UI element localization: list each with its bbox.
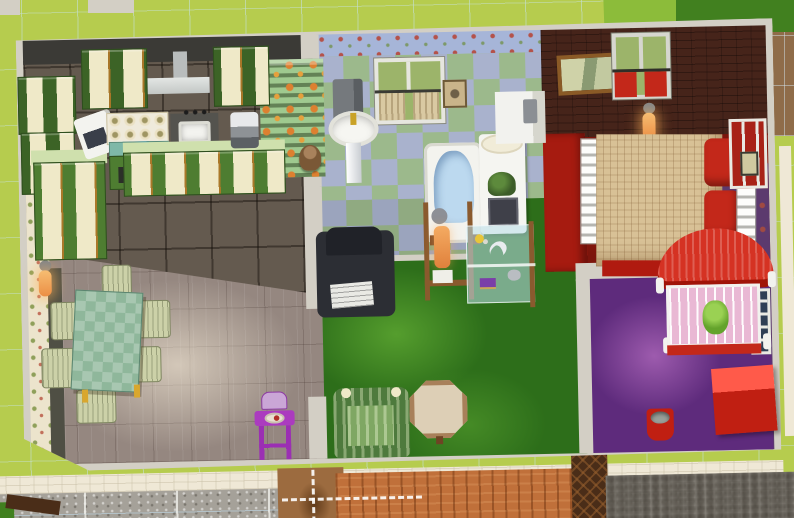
side-window-art	[740, 151, 758, 175]
green-striped-armchair[interactable]	[333, 387, 410, 459]
game-viewport	[0, 0, 794, 518]
recliner-papers	[330, 281, 374, 309]
armchair-knob-right	[391, 387, 401, 397]
red-toy-box[interactable]	[711, 365, 778, 435]
octagonal-table-top	[409, 380, 468, 439]
bedroom-curtain-left	[614, 72, 637, 97]
counter-appliance	[523, 99, 537, 123]
high-chair[interactable]	[252, 391, 297, 460]
sink-faucet-gold	[350, 113, 356, 125]
house-interior	[23, 25, 775, 464]
armchair-knob-left	[341, 388, 351, 398]
dark-recliner[interactable]	[316, 230, 396, 318]
curtain-left	[379, 93, 406, 121]
high-chair-legs	[259, 425, 292, 460]
curtain-right	[413, 92, 440, 120]
table-leg-left	[82, 390, 88, 403]
bucket-interior	[651, 411, 670, 423]
crib-post-se	[763, 333, 771, 349]
crib-base	[667, 343, 761, 355]
crib-post-nw	[656, 277, 664, 293]
range-hood-pipe	[173, 51, 188, 79]
canopy-crib[interactable]	[655, 223, 780, 358]
teddy-bear[interactable]	[299, 145, 322, 171]
candle[interactable]	[434, 226, 451, 268]
sconce-light	[38, 270, 52, 296]
coffee-maker[interactable]	[230, 112, 259, 149]
base-cabinet-west[interactable]	[33, 161, 107, 260]
dining-table[interactable]	[71, 290, 144, 393]
octagonal-table[interactable]	[409, 380, 468, 445]
upper-cabinets-left[interactable]	[81, 48, 148, 109]
red-bucket[interactable]	[646, 408, 674, 441]
paper-holder[interactable]	[443, 80, 468, 108]
teapot	[508, 269, 521, 280]
bathroom-counter[interactable]	[495, 91, 546, 144]
recliner-backrest	[326, 226, 383, 255]
high-chair-back	[261, 391, 287, 410]
dolphin-figurine	[486, 238, 509, 261]
bathroom-window[interactable]	[374, 57, 445, 124]
bedroom-curtain-right	[644, 71, 667, 96]
dresser-with-plant[interactable]	[479, 133, 527, 234]
baby-in-crib[interactable]	[702, 300, 729, 335]
divider-wall-bottom	[308, 397, 327, 459]
stand-ball	[431, 208, 447, 224]
yellow-flower	[475, 234, 484, 243]
window-mullion	[406, 62, 411, 92]
stand-towel	[433, 270, 453, 283]
glass-display-shelf[interactable]	[466, 224, 536, 303]
gravel-with-footprints	[606, 471, 794, 518]
shelf-divider	[467, 263, 535, 267]
wooden-deck	[335, 468, 604, 518]
crib-canopy	[657, 227, 774, 289]
sink-faucets	[182, 107, 208, 118]
pedestal-sink[interactable]	[328, 110, 379, 183]
dresser-drawer	[488, 197, 519, 226]
base-cabinets-row[interactable]	[123, 149, 286, 196]
purple-book	[480, 278, 496, 287]
octagonal-table-leg	[436, 436, 443, 444]
house	[15, 18, 781, 472]
sink-pedestal	[346, 143, 362, 183]
neighbor-block-mid	[88, 0, 134, 13]
bedroom-window-mullion	[639, 37, 644, 71]
range-hood[interactable]	[147, 77, 209, 94]
upper-cabinets-right[interactable]	[213, 46, 270, 107]
wall-cabinet-west-upper[interactable]	[17, 76, 76, 135]
potted-plant[interactable]	[487, 172, 515, 197]
armchair-seat	[347, 405, 394, 446]
bedroom-side-window[interactable]	[728, 118, 767, 189]
crib-post-ne	[768, 271, 776, 287]
neighbor-block-left	[0, 0, 20, 15]
table-leg-right	[134, 384, 140, 397]
dining-wall-sconce[interactable]	[36, 260, 54, 298]
bedroom-window[interactable]	[612, 32, 671, 99]
